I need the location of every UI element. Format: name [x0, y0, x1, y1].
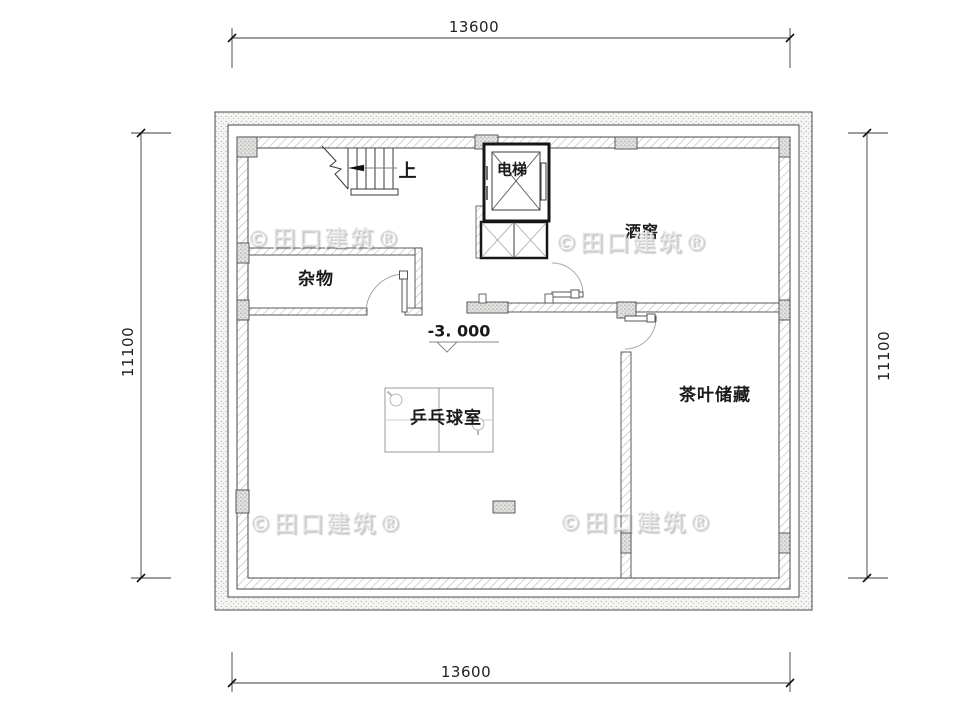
storage-room-right-wall	[415, 248, 422, 315]
pier-left-wall-3	[236, 490, 249, 513]
watermark: ©田口建筑®	[247, 220, 403, 254]
room-label-elevator: 电梯	[497, 159, 527, 180]
pier-left-wall-2	[237, 300, 249, 320]
dimension-top	[228, 28, 794, 68]
door-swing-arc	[625, 318, 656, 349]
elevation-marker-icon	[429, 342, 499, 352]
elevator-door-rail	[541, 163, 546, 200]
door-swing-arc	[552, 263, 583, 294]
pier-top-right-corner	[779, 137, 790, 157]
stair-landing-edge	[351, 189, 398, 195]
dimension-text-right: 11100	[875, 331, 893, 381]
pier-right-wall-2	[779, 533, 790, 553]
door-tea-storage	[625, 314, 656, 349]
door-wine-cellar	[552, 263, 583, 298]
stair-break-line	[322, 146, 348, 189]
room-label-tea-storage: 茶叶储藏	[679, 381, 751, 406]
staircase	[322, 146, 398, 195]
storage-room-bottom-wall-stub	[405, 308, 422, 315]
dimension-text-left: 11100	[119, 327, 137, 377]
door-handle	[647, 314, 655, 322]
pier-top-wall-right	[615, 137, 637, 149]
door-handle	[571, 290, 579, 298]
door-swing-arc	[366, 274, 404, 312]
watermark: ©田口建筑®	[555, 224, 711, 258]
door-storage-room	[366, 271, 408, 312]
watermark: ©田口建筑®	[249, 505, 405, 539]
elevation-value: -3. 000	[428, 322, 491, 341]
door-handle	[400, 271, 408, 279]
room-label-storage: 杂物	[298, 265, 334, 290]
watermark: ©田口建筑®	[559, 504, 715, 538]
door-leaf	[402, 274, 407, 312]
dimension-text-bottom: 13600	[441, 663, 491, 681]
floor-plan-drawing	[0, 0, 961, 722]
stair-up-label: 上	[399, 157, 418, 183]
pier-freestanding-column	[493, 501, 515, 513]
pier-top-left-corner	[237, 137, 257, 157]
dimension-left	[131, 129, 171, 582]
stair-direction-arrow-icon	[348, 165, 364, 171]
storage-room-bottom-wall	[248, 308, 367, 315]
pier-right-wall-1	[779, 300, 790, 320]
dimension-bottom	[228, 652, 794, 692]
floor-plan-canvas: 13600 13600 11100 11100 杂物 电梯 酒窖 乒乓球室 茶叶…	[0, 0, 961, 722]
door-jamb	[545, 294, 553, 303]
dimension-text-top: 13600	[449, 18, 499, 36]
pier-mid-wall-left-end	[467, 302, 508, 313]
door-jamb	[479, 294, 486, 303]
room-label-table-tennis: 乒乓球室	[410, 404, 482, 429]
